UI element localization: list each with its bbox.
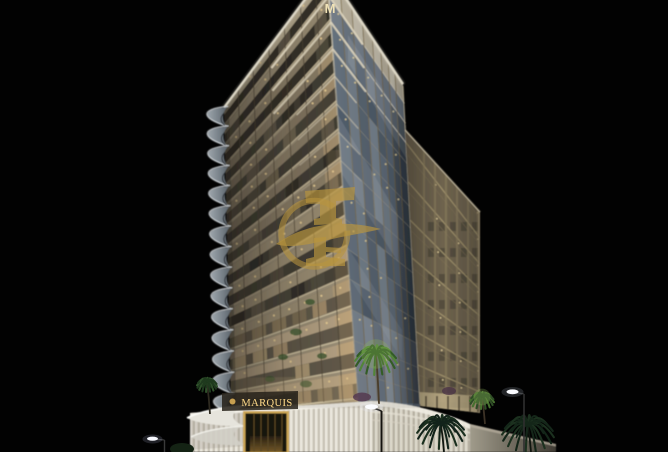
svg-text:M: M bbox=[325, 1, 336, 16]
svg-text:MARQUIS: MARQUIS bbox=[241, 398, 292, 409]
